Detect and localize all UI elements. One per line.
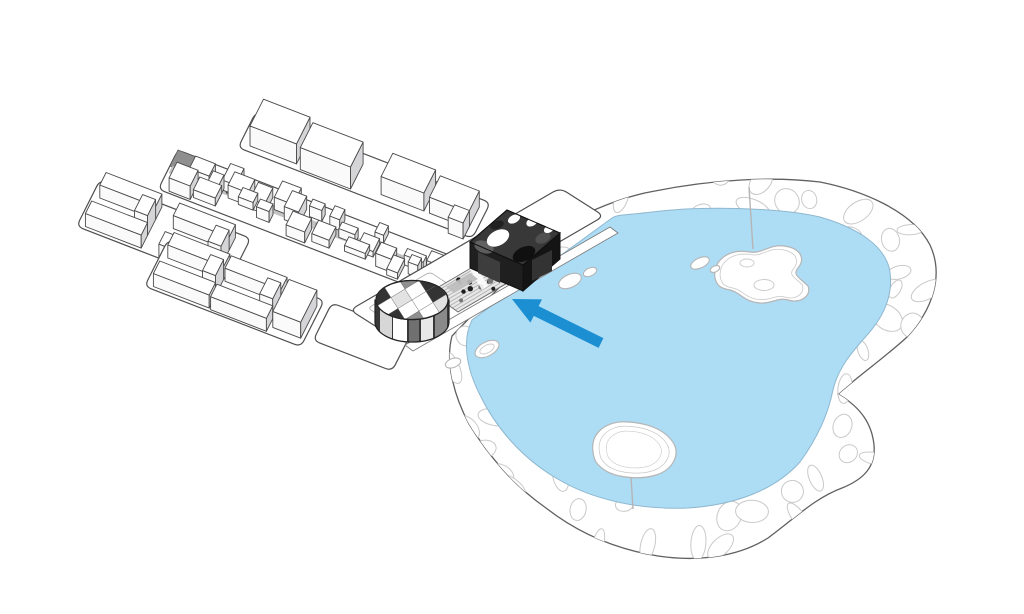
- figure: [0, 0, 1024, 614]
- masterplan-diagram: [0, 0, 1024, 614]
